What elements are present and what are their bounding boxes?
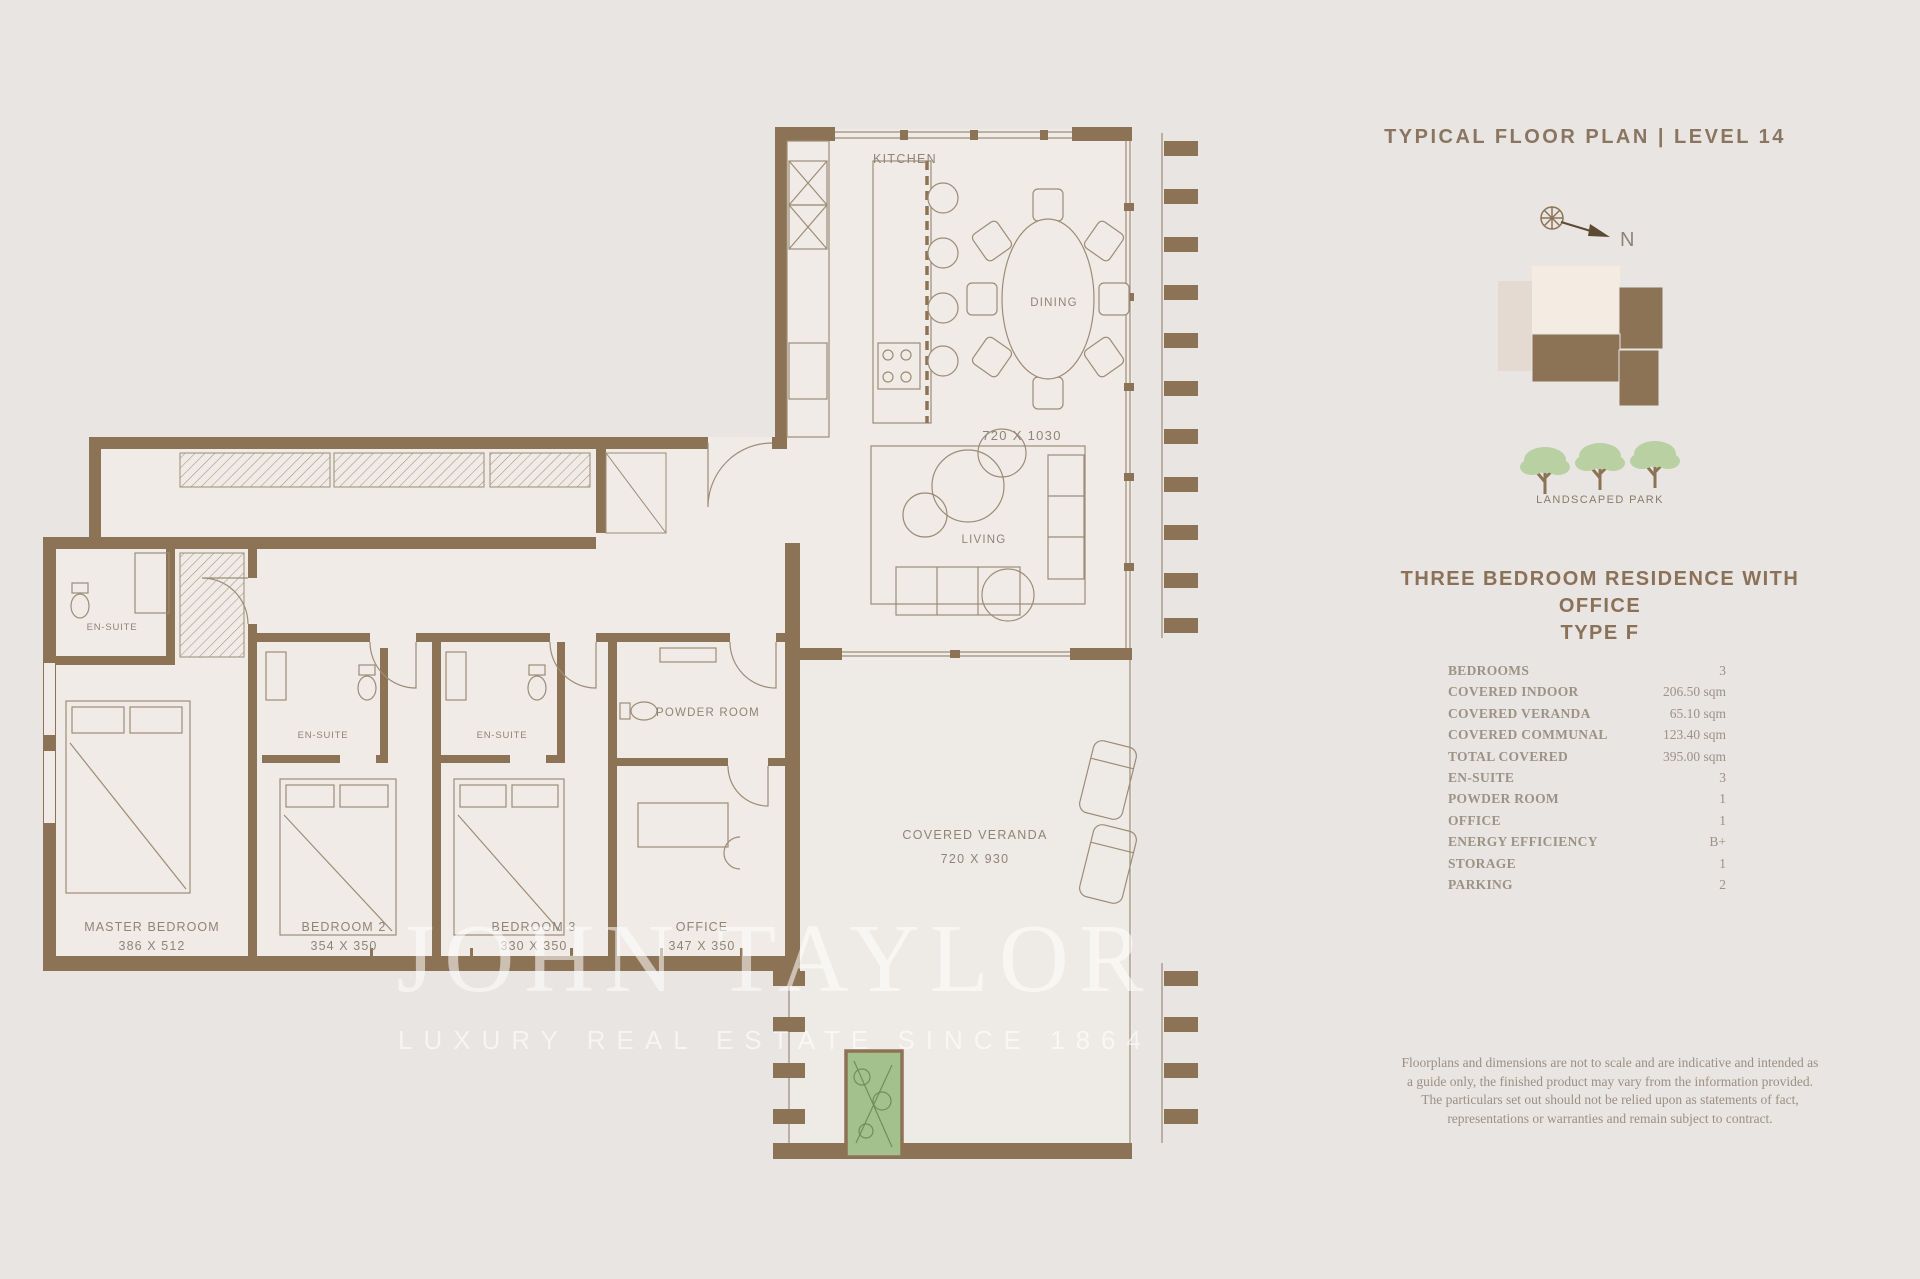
landscaped-park-label: LANDSCAPED PARK xyxy=(1490,494,1710,506)
living-label: LIVING xyxy=(962,534,1007,546)
spec-value: 395.00 sqm xyxy=(1663,749,1726,765)
spec-label: OFFICE xyxy=(1448,813,1501,829)
keyplan-wing-cream xyxy=(1532,266,1620,334)
dining-dims: 720 X 1030 xyxy=(982,428,1062,443)
powder-room-label: POWDER ROOM xyxy=(656,707,760,719)
spec-label: EN-SUITE xyxy=(1448,770,1514,786)
spec-row: EN-SUITE3 xyxy=(1448,770,1726,791)
spec-label: ENERGY EFFICIENCY xyxy=(1448,834,1598,850)
compass-n-label: N xyxy=(1620,229,1634,251)
spec-label: COVERED COMMUNAL xyxy=(1448,727,1608,743)
tree-icon xyxy=(1520,447,1570,494)
spec-row: STORAGE1 xyxy=(1448,856,1726,877)
page-title: TYPICAL FLOOR PLAN | LEVEL 14 xyxy=(1355,126,1815,149)
keyplan-unit-low xyxy=(1619,350,1659,406)
dining-label: DINING xyxy=(1030,297,1077,309)
spec-table: BEDROOMS3 COVERED INDOOR206.50 sqm COVER… xyxy=(1448,663,1726,898)
spec-value: 206.50 sqm xyxy=(1663,684,1726,700)
spec-value: 3 xyxy=(1719,663,1726,679)
keyplan-wing-pale xyxy=(1498,281,1534,371)
kitchen-label: KITCHEN xyxy=(873,152,937,166)
spec-label: POWDER ROOM xyxy=(1448,791,1559,807)
residence-title: THREE BEDROOM RESIDENCE WITH OFFICE TYPE… xyxy=(1360,566,1840,647)
floor-plan: KITCHEN DINING 720 X 1030 LIVING COVERED… xyxy=(40,103,1200,1178)
office-label: OFFICE xyxy=(676,920,728,934)
spec-value: 123.40 sqm xyxy=(1663,727,1726,743)
veranda-dims: 720 X 930 xyxy=(941,852,1010,866)
bedroom2-dims: 354 X 350 xyxy=(311,939,378,953)
bedroom2-label: BEDROOM 2 xyxy=(302,920,387,934)
ensuite-2-label: EN-SUITE xyxy=(298,730,349,741)
tree-icon xyxy=(1630,441,1680,488)
spec-row: POWDER ROOM1 xyxy=(1448,791,1726,812)
residence-title-line1: THREE BEDROOM RESIDENCE WITH OFFICE xyxy=(1360,566,1840,620)
veranda-label: COVERED VERANDA xyxy=(902,828,1047,842)
ensuite-master-label: EN-SUITE xyxy=(87,622,138,633)
landscaped-park-trees xyxy=(1518,438,1683,500)
spec-row: PARKING2 xyxy=(1448,877,1726,898)
spec-row: ENERGY EFFICIENCYB+ xyxy=(1448,834,1726,855)
compass-icon: N xyxy=(1528,198,1648,254)
residence-title-line2: TYPE F xyxy=(1360,620,1840,647)
master-bedroom-dims: 386 X 512 xyxy=(119,939,186,953)
spec-row: BEDROOMS3 xyxy=(1448,663,1726,684)
bedroom3-label: BEDROOM 3 xyxy=(492,920,577,934)
spec-label: TOTAL COVERED xyxy=(1448,749,1568,765)
keyplan xyxy=(1495,258,1673,413)
master-bedroom-label: MASTER BEDROOM xyxy=(84,920,220,934)
spec-value: 2 xyxy=(1719,877,1726,893)
keyplan-unit-right xyxy=(1619,287,1663,349)
spec-label: PARKING xyxy=(1448,877,1513,893)
planter-box xyxy=(846,1051,902,1157)
spec-row: OFFICE1 xyxy=(1448,813,1726,834)
spec-label: STORAGE xyxy=(1448,856,1516,872)
spec-label: BEDROOMS xyxy=(1448,663,1529,679)
office-dims: 347 X 350 xyxy=(669,939,736,953)
bedroom3-dims: 330 X 350 xyxy=(501,939,568,953)
spec-row: COVERED COMMUNAL123.40 sqm xyxy=(1448,727,1726,748)
spec-row: TOTAL COVERED395.00 sqm xyxy=(1448,749,1726,770)
spec-value: 1 xyxy=(1719,813,1726,829)
spec-value: 3 xyxy=(1719,770,1726,786)
spec-value: 65.10 sqm xyxy=(1670,706,1726,722)
spec-value: 1 xyxy=(1719,791,1726,807)
ensuite-3-label: EN-SUITE xyxy=(477,730,528,741)
disclaimer-text: Floorplans and dimensions are not to sca… xyxy=(1398,1054,1822,1128)
spec-label: COVERED VERANDA xyxy=(1448,706,1591,722)
spec-label: COVERED INDOOR xyxy=(1448,684,1579,700)
spec-value: 1 xyxy=(1719,856,1726,872)
spec-row: COVERED VERANDA65.10 sqm xyxy=(1448,706,1726,727)
keyplan-unit-mid xyxy=(1532,334,1620,382)
spec-value: B+ xyxy=(1709,834,1726,850)
spec-row: COVERED INDOOR206.50 sqm xyxy=(1448,684,1726,705)
tree-icon xyxy=(1575,443,1625,490)
